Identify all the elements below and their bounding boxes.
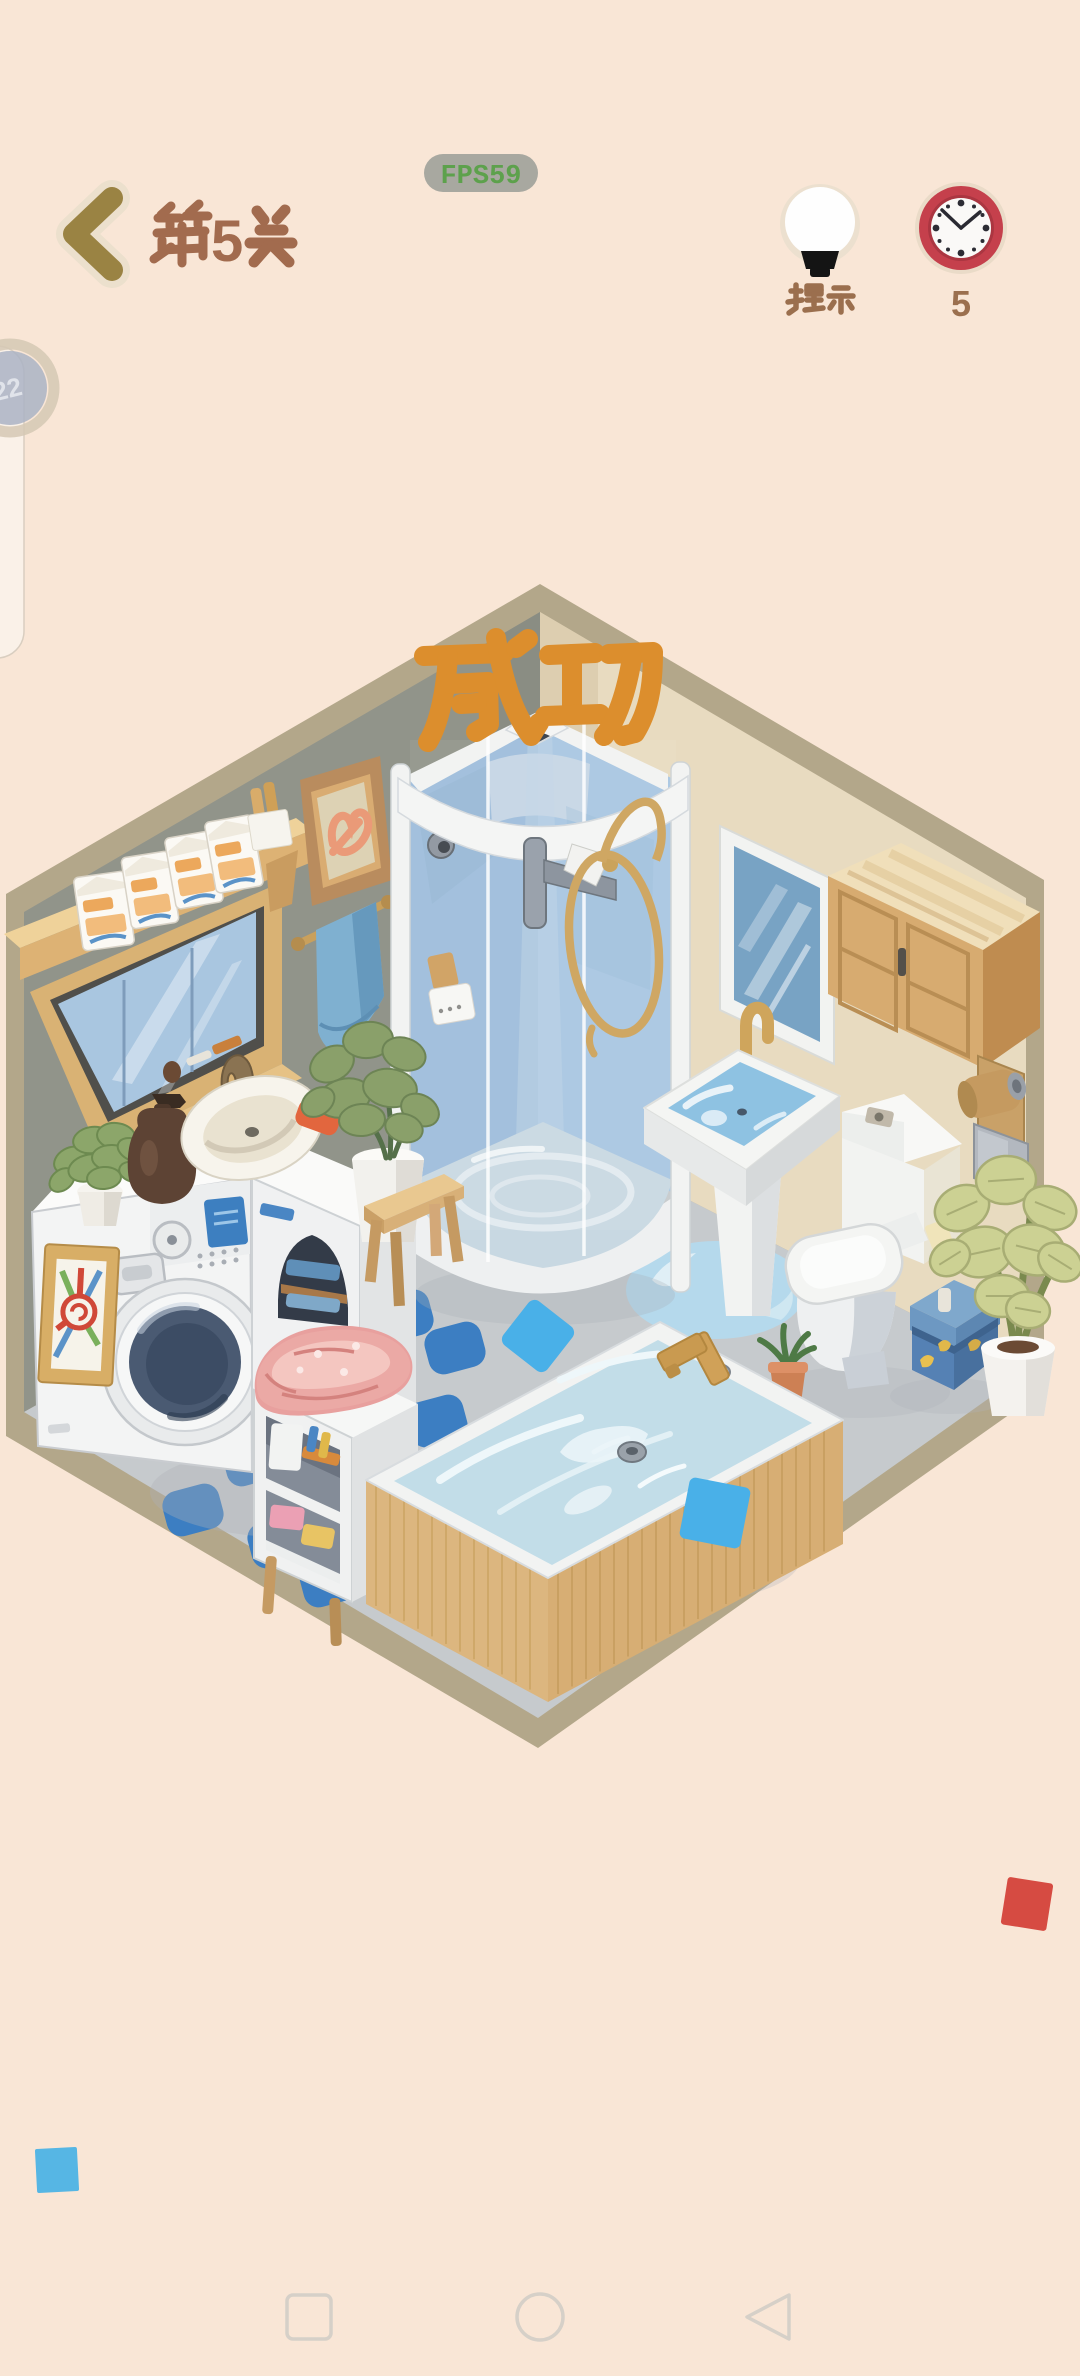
svg-text:5: 5 (951, 283, 971, 324)
svg-text:5: 5 (211, 209, 243, 274)
svg-text:FPS59: FPS59 (440, 162, 521, 192)
